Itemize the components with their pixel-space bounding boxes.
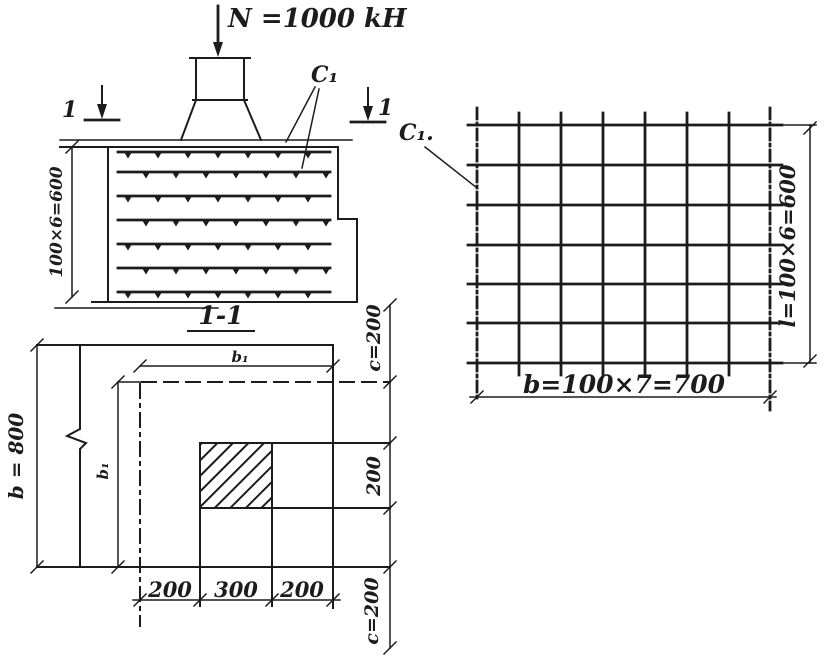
scanned-drawing-page: N =1000 kH	[0, 0, 830, 663]
cut-digit-right: 1	[378, 95, 393, 121]
cut-mark-right: 1	[351, 88, 393, 122]
mesh-layers	[118, 152, 330, 299]
plan-dim-200-left: 200	[147, 577, 192, 602]
mesh-view: C₁. b=100×7=700	[399, 108, 816, 410]
section-height-dimension: 100×6=600	[47, 141, 78, 303]
cut-digit-left: 1	[62, 97, 77, 123]
mesh-callout: C₁.	[399, 120, 477, 188]
column	[181, 58, 261, 140]
mesh-width-dim-label: b=100×7=700	[523, 370, 726, 399]
plan-width-dimension: b = 800	[4, 339, 43, 573]
plan-bottom-dimension: 200 300 200	[133, 577, 340, 606]
section-mesh-ref-label: C₁	[311, 62, 338, 88]
plan-b1-horizontal-dimension: b₁	[134, 348, 339, 372]
section-caption-text: 1-1	[198, 301, 243, 330]
column-hatch	[200, 443, 272, 508]
load-arrow	[213, 6, 223, 57]
mesh-height-dimension: l=100×6=600	[775, 122, 816, 367]
plan-b1-h-label: b₁	[231, 348, 248, 366]
plan-dim-200-mid: 200	[363, 456, 385, 497]
plan-b1-v-label: b₁	[94, 462, 112, 479]
plan-dim-200-right: 200	[279, 577, 324, 602]
plan-width-dim-label: b = 800	[4, 413, 28, 500]
mesh-horizontal-bars	[468, 125, 782, 363]
plan-b1-vertical-dimension: b₁	[94, 376, 124, 573]
plan-dim-c200-top: c=200	[363, 304, 385, 371]
mesh-label: C₁.	[399, 120, 434, 146]
cut-mark-left: 1	[62, 86, 119, 123]
cross-bar-ticks	[124, 152, 330, 299]
plan-right-dimension: c=200 200 c=200	[361, 299, 396, 654]
engineering-drawing: N =1000 kH	[0, 0, 830, 663]
plan-view: b = 800 b₁ b₁	[4, 299, 396, 654]
left-edge-with-break	[67, 345, 86, 567]
mesh-height-dim-label: l=100×6=600	[775, 164, 800, 327]
section-view: N =1000 kH	[47, 4, 408, 331]
plan-dim-c200-bottom: c=200	[361, 577, 383, 644]
section-height-dim-label: 100×6=600	[47, 166, 67, 277]
load-label: N =1000 kH	[227, 4, 408, 34]
plan-dim-300: 300	[214, 577, 258, 602]
mesh-vertical-bars	[477, 108, 770, 410]
section-caption: 1-1	[188, 301, 254, 331]
